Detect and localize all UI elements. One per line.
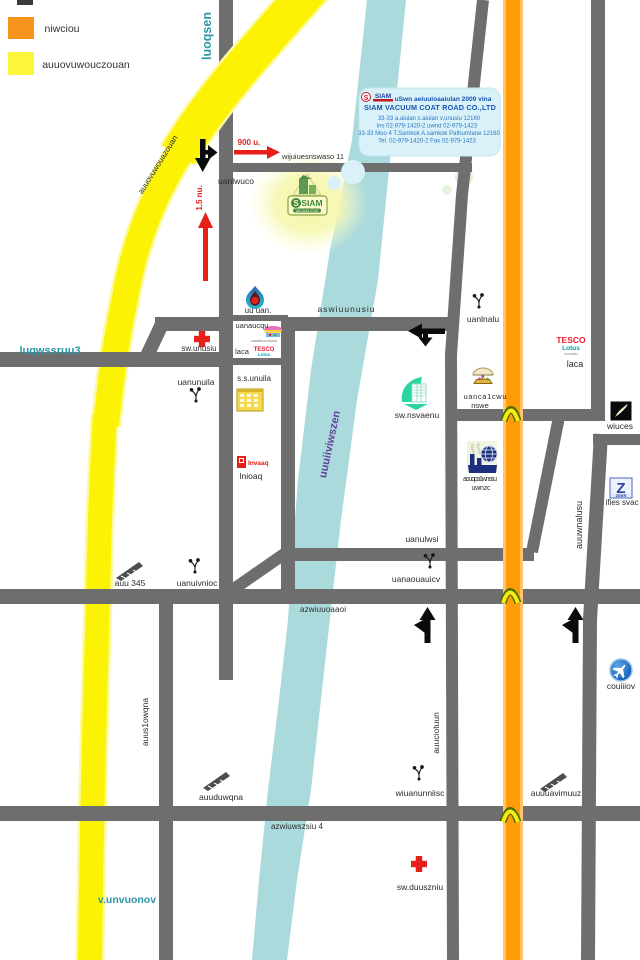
svg-text:lnioaq: lnioaq [240,471,263,481]
svg-text:uwnzc: uwnzc [472,485,492,492]
svg-text:auuwnalusu: auuwnalusu [574,501,584,549]
svg-text:wiuces: wiuces [606,421,633,431]
svg-text:v.unvuonov: v.unvuonov [98,894,156,906]
svg-text:nswe: nswe [471,401,489,410]
svg-text:luoqsen: luoqsen [200,12,214,60]
svg-text:sw.nsvaenu: sw.nsvaenu [395,410,440,420]
svg-text:33-33 a.aiulan c.aiulan v.unus: 33-33 a.aiulan c.aiulan v.unusiu 12160 [378,116,481,122]
svg-text:auuovuwouazouan: auuovuwouazouan [136,134,179,196]
svg-text:wiuanunniisc: wiuanunniisc [395,788,445,798]
svg-text:uanulwsi: uanulwsi [405,534,438,544]
svg-text:900 u.: 900 u. [238,138,261,147]
svg-text:uanaouauicv: uanaouauicv [392,574,441,584]
svg-text:luqwssruu3: luqwssruu3 [19,345,80,357]
svg-text:uSwn aeiuuioaaiulan 2009 vina: uSwn aeiuuioaaiulan 2009 vina [395,96,492,103]
svg-text:auu 345: auu 345 [115,578,146,588]
svg-text:SIAM VACUUM COAT ROAD CO.,LTD: SIAM VACUUM COAT ROAD CO.,LTD [364,103,496,112]
svg-text:couiiiov: couiiiov [607,681,636,691]
svg-text:uanlnalu: uanlnalu [467,314,499,324]
svg-text:auuuavimuuz: auuuavimuuz [531,788,582,798]
svg-text:azwiuwszsiu 4: azwiuwszsiu 4 [271,822,324,831]
svg-text:wijuiuesnswaso 11: wijuiuesnswaso 11 [281,152,344,161]
svg-text:auus1owqna: auus1owqna [140,698,150,746]
svg-text:Tel. 02-979-1420-2 Fax 02-979: Tel. 02-979-1420-2 Fax 02-979-1423 [378,139,476,145]
svg-text:33-33 Moo 4 T.Samkok A.samkok: 33-33 Moo 4 T.Samkok A.samkok Pathumtane… [358,131,500,137]
svg-text:uanuivnioc: uanuivnioc [177,578,218,588]
svg-text:azwiuuoaaoi: azwiuuoaaoi [300,605,346,614]
svg-text:auuovuwouczouan: auuovuwouczouan [42,59,130,71]
svg-text:sw.unusiu: sw.unusiu [181,344,216,353]
svg-text:laca: laca [235,347,250,356]
svg-text:uanaucqu: uanaucqu [236,321,269,330]
svg-text:sw.duuszniu: sw.duuszniu [397,882,444,892]
svg-text:uuuiiviwszen: uuuiiviwszen [317,409,343,479]
svg-text:niwciou: niwciou [44,23,79,35]
svg-text:aswiuunusiu: aswiuunusiu [318,304,375,314]
svg-text:uanca1cwu: uanca1cwu [464,392,507,401]
svg-text:uu uan.: uu uan. [245,306,272,315]
svg-text:1.5 nu.: 1.5 nu. [195,185,204,210]
svg-text:aouqca1wnssu: aouqca1wnssu [463,476,497,483]
svg-text:ifies svac: ifies svac [606,498,639,507]
svg-text:auuciotuun: auuciotuun [431,712,441,754]
svg-text:laca: laca [567,359,584,369]
svg-text:lns 02-979-1420-2 uwnd 02-979-: lns 02-979-1420-2 uwnd 02-979-1423 [377,124,478,130]
svg-text:uanunuila: uanunuila [178,377,215,387]
svg-text:uanlwuco: uanlwuco [218,176,254,186]
svg-text:s.s.unuila: s.s.unuila [237,374,271,383]
svg-text:auuduwqna: auuduwqna [199,792,243,802]
